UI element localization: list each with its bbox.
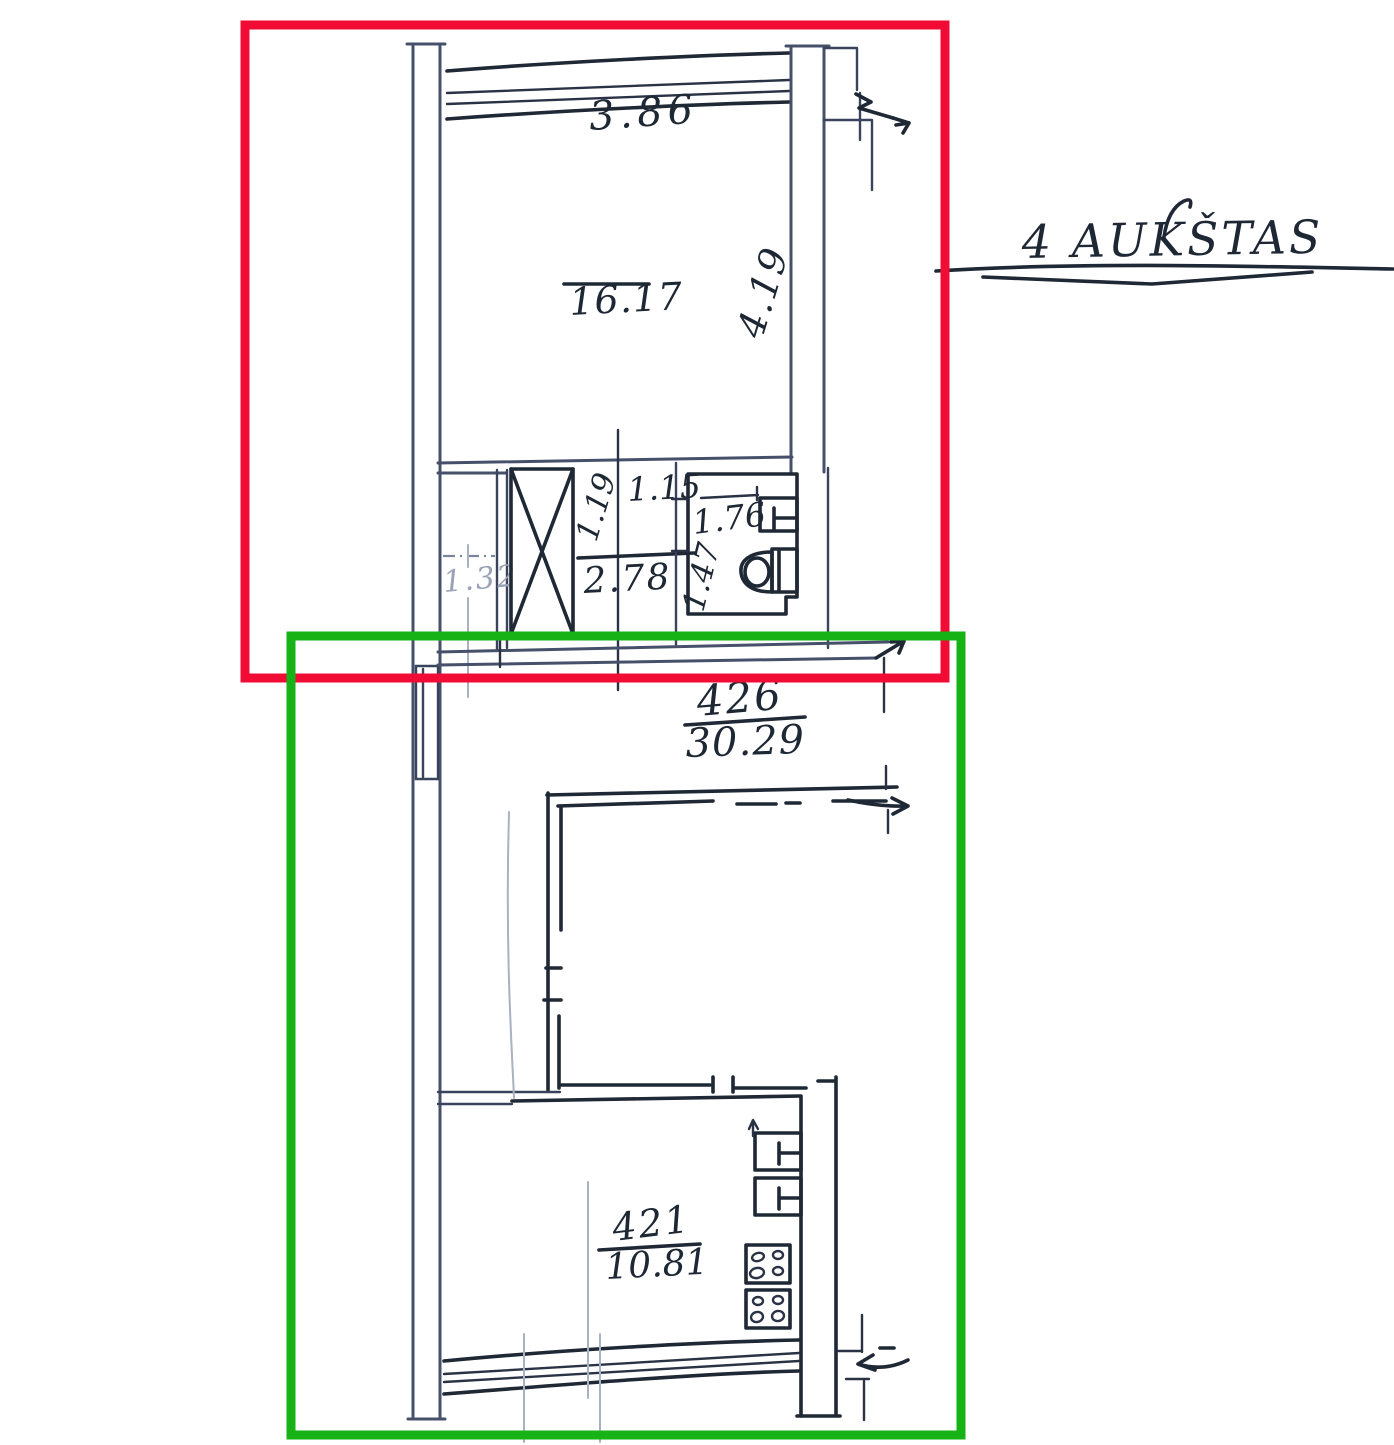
crossed-box-icon: 1.19 <box>511 469 624 634</box>
title-underline <box>936 265 1393 284</box>
lower-window <box>444 1340 799 1394</box>
kitchen-label: 421 10.81 <box>599 1197 709 1288</box>
shaft-depth-label: 1.19 <box>569 469 624 546</box>
break-arrow-icon-bottom <box>858 1348 908 1370</box>
room-area-label: 16.17 <box>568 274 684 324</box>
kitchen: 421 10.81 <box>438 812 908 1442</box>
kitchen-number: 421 <box>609 1197 693 1250</box>
hallway: 1.15 2.78 <box>578 430 702 690</box>
stove-icon-2 <box>746 1290 790 1328</box>
break-arrow-icon <box>856 94 909 133</box>
room-depth-label: 4.19 <box>728 241 797 343</box>
kitchen-area: 10.81 <box>604 1242 709 1288</box>
living-room <box>544 766 908 1092</box>
lower-selection-box <box>291 636 961 1435</box>
upper-room-label: 16.17 4.19 <box>564 241 798 343</box>
wc-width-label: 1.76 <box>690 494 768 542</box>
upper-right-wall <box>786 46 909 472</box>
stove-icon-1 <box>746 1245 790 1283</box>
floor-title-text: 4 AUKŠTAS <box>1020 209 1324 269</box>
exterior-left-wall <box>407 44 445 1419</box>
room-bottom-partition <box>438 457 792 473</box>
kitchen-sink-icon-1 <box>749 1120 801 1170</box>
dim-room-width: 3.86 <box>587 86 699 139</box>
kitchen-sink-icon-2 <box>755 1178 801 1215</box>
closet-width-label: 1.32 <box>442 559 520 600</box>
toilet-icon <box>741 549 797 592</box>
floorplan-svg: 3.86 16.17 4.19 1.32 1.19 1.15 2.78 <box>0 0 1394 1445</box>
floor-title: 4 AUKŠTAS <box>936 200 1393 284</box>
apartment-area: 30.29 <box>685 717 806 767</box>
hall-area-label: 2.78 <box>581 556 672 602</box>
duct-box <box>416 666 438 779</box>
apartment-label: 426 30.29 <box>685 670 806 767</box>
